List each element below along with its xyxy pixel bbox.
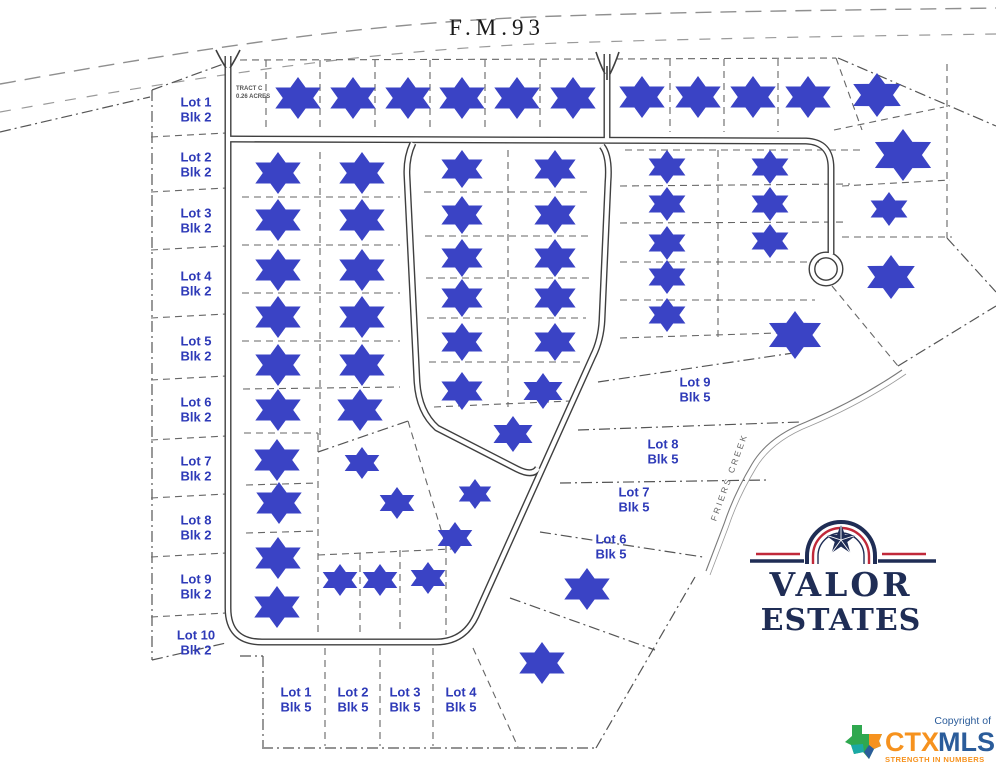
star-marker xyxy=(380,487,415,519)
star-marker xyxy=(411,562,446,594)
star-marker xyxy=(441,239,482,277)
lot-label-lot-4-blk-5: Lot 4Blk 5 xyxy=(445,685,476,714)
star-marker xyxy=(345,447,380,479)
star-marker xyxy=(255,389,300,431)
star-marker xyxy=(256,482,301,524)
lot-label-lot-8-blk-2: Lot 8Blk 2 xyxy=(180,513,211,542)
star-marker xyxy=(339,152,384,194)
lot-label-lot-9-blk-2: Lot 9Blk 2 xyxy=(180,572,211,601)
star-marker xyxy=(752,150,789,184)
star-marker xyxy=(494,77,539,119)
lot-label-lot-2-blk-5: Lot 2Blk 5 xyxy=(337,685,368,714)
lot-label-lot-1-blk-2: Lot 1Blk 2 xyxy=(180,95,211,124)
road-entrance-flares xyxy=(216,50,619,80)
valor-wordmark-line2: ESTATES xyxy=(761,603,922,638)
lot-lines-central-block xyxy=(424,150,592,407)
star-marker xyxy=(441,372,482,410)
star-marker xyxy=(254,439,299,481)
ctxmls-tagline: STRENGTH IN NUMBERS xyxy=(885,755,985,764)
star-marker xyxy=(255,344,300,386)
map-linework xyxy=(0,0,996,768)
lot-label-lot-9-blk-5: Lot 9Blk 5 xyxy=(679,375,710,404)
star-marker xyxy=(534,323,575,361)
star-marker xyxy=(275,77,320,119)
star-marker xyxy=(730,76,775,118)
star-marker xyxy=(534,150,575,188)
star-marker xyxy=(339,249,384,291)
star-marker xyxy=(494,416,533,452)
star-marker xyxy=(649,150,686,184)
star-marker xyxy=(564,568,609,610)
star-marker xyxy=(649,298,686,332)
star-marker xyxy=(769,311,821,359)
star-marker xyxy=(254,586,299,628)
star-marker xyxy=(871,192,908,226)
star-marker xyxy=(255,537,300,579)
star-marker xyxy=(363,564,398,596)
star-marker xyxy=(875,129,931,181)
mls-wordmark: MLS xyxy=(938,727,995,757)
plat-map: F.M.93 TRACT C 0.26 ACRES FRIERS CREEK L… xyxy=(0,0,996,768)
star-marker xyxy=(441,323,482,361)
valor-wordmark-line1: VALOR xyxy=(768,565,912,604)
valor-star-icon xyxy=(826,524,856,553)
star-marker xyxy=(255,249,300,291)
lot-label-lot-6-blk-5: Lot 6Blk 5 xyxy=(595,532,626,561)
star-marker xyxy=(524,373,563,409)
lot-label-lot-2-blk-2: Lot 2Blk 2 xyxy=(180,150,211,179)
lot-label-lot-5-blk-2: Lot 5Blk 2 xyxy=(180,334,211,363)
star-marker xyxy=(385,77,430,119)
star-marker xyxy=(255,296,300,338)
star-marker xyxy=(255,199,300,241)
star-marker xyxy=(867,255,915,299)
highway-label: F.M.93 xyxy=(449,15,545,41)
tract-label: TRACT C 0.26 ACRES xyxy=(236,86,270,102)
lot-label-lot-3-blk-5: Lot 3Blk 5 xyxy=(389,685,420,714)
ctxmls-logo: Copyright of CTX MLS STRENGTH IN NUMBERS xyxy=(836,698,996,766)
star-marker xyxy=(853,73,901,117)
ctx-wordmark: CTX xyxy=(885,727,939,757)
star-marker xyxy=(534,279,575,317)
star-marker xyxy=(459,479,491,509)
star-marker xyxy=(649,187,686,221)
star-marker xyxy=(441,196,482,234)
lot-label-lot-8-blk-5: Lot 8Blk 5 xyxy=(647,437,678,466)
star-marker xyxy=(339,344,384,386)
copyright-text: Copyright of xyxy=(934,715,991,727)
star-marker xyxy=(649,226,686,260)
star-marker xyxy=(339,199,384,241)
star-marker xyxy=(330,77,375,119)
valor-estates-logo: VALOR ESTATES xyxy=(748,482,944,647)
highway-line-lower xyxy=(0,34,996,112)
star-marker xyxy=(534,239,575,277)
star-marker xyxy=(785,76,830,118)
star-marker xyxy=(323,564,358,596)
texas-icon xyxy=(845,725,882,759)
lot-label-lot-7-blk-2: Lot 7Blk 2 xyxy=(180,454,211,483)
star-marker xyxy=(441,150,482,188)
roads xyxy=(216,50,840,642)
star-marker xyxy=(255,152,300,194)
lot-label-lot-3-blk-2: Lot 3Blk 2 xyxy=(180,206,211,235)
star-marker xyxy=(519,642,564,684)
lot-label-lot-10-blk-2: Lot 10Blk 2 xyxy=(177,628,215,657)
lot-label-lot-1-blk-5: Lot 1Blk 5 xyxy=(280,685,311,714)
star-marker xyxy=(550,77,595,119)
lot-label-lot-7-blk-5: Lot 7Blk 5 xyxy=(618,485,649,514)
star-marker xyxy=(339,296,384,338)
star-marker xyxy=(441,279,482,317)
star-marker xyxy=(534,196,575,234)
star-marker xyxy=(439,77,484,119)
star-marker xyxy=(619,76,664,118)
star-marker xyxy=(337,389,382,431)
star-marker xyxy=(675,76,720,118)
star-marker xyxy=(649,260,686,294)
star-marker xyxy=(752,224,789,258)
lot-label-lot-6-blk-2: Lot 6Blk 2 xyxy=(180,395,211,424)
lot-label-lot-4-blk-2: Lot 4Blk 2 xyxy=(180,269,211,298)
star-marker xyxy=(752,187,789,221)
